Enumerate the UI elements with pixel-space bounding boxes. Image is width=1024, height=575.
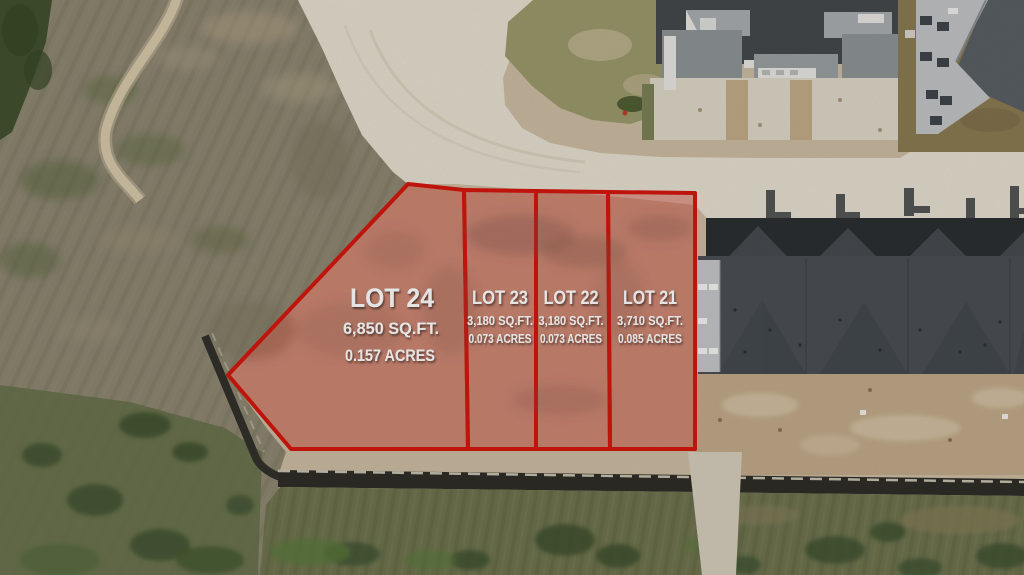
aerial-scene: LOT 24 6,850 SQ.FT. 0.157 ACRES LOT 23 3… bbox=[0, 0, 1024, 575]
aerial-lot-photo: LOT 24 6,850 SQ.FT. 0.157 ACRES LOT 23 3… bbox=[0, 0, 1024, 575]
photo-grain bbox=[0, 0, 1024, 575]
